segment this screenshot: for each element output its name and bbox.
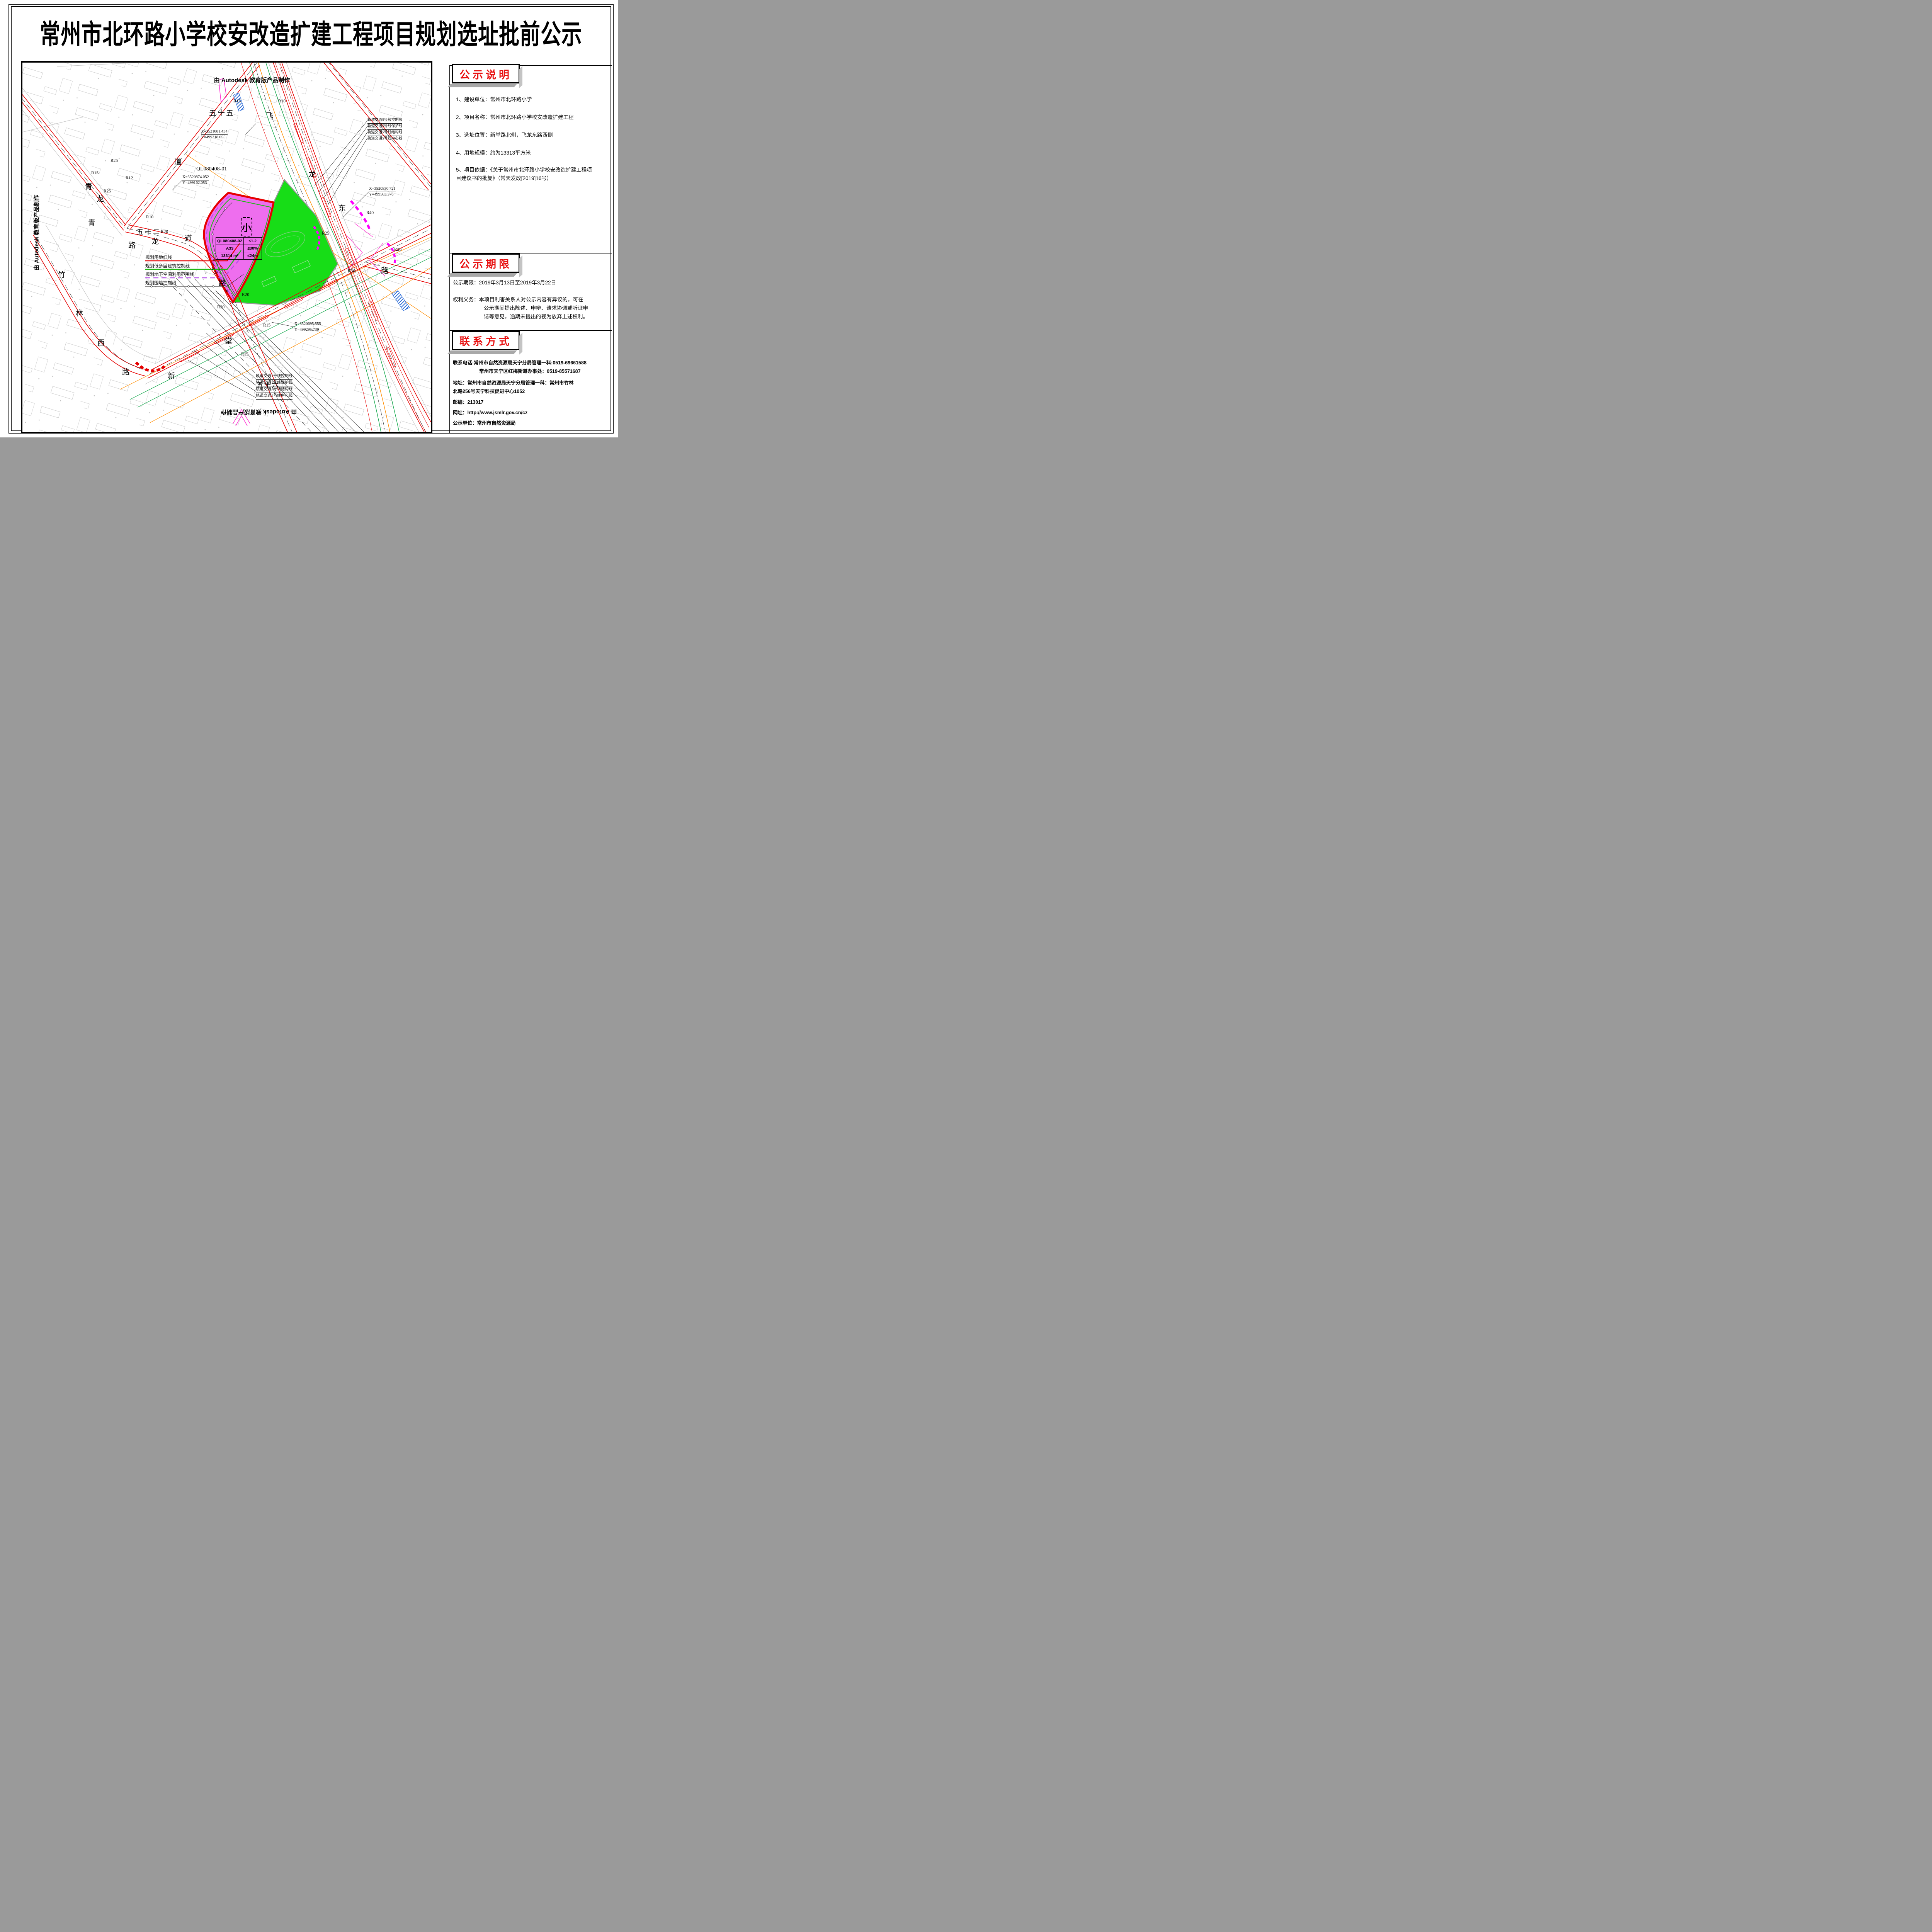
- contact-website: 网址：http://www.jsmlr.gov.cn/cz: [453, 408, 527, 416]
- notice-item: 目建议书的批复》（常天发改[2019]16号）: [456, 174, 552, 182]
- road-label: 龙: [308, 168, 316, 179]
- road-label: 飞: [266, 110, 273, 120]
- radius-label: R20: [217, 305, 224, 310]
- road-label: 五十二: [137, 226, 161, 236]
- road-label: 道: [174, 156, 182, 167]
- road-label: 西: [97, 337, 105, 347]
- road-label: 道: [185, 233, 192, 243]
- radius-label: R15: [233, 99, 241, 104]
- plot-code-cell: QL080408-02: [216, 238, 244, 245]
- road-label: 林: [76, 308, 83, 318]
- legend-item-label: 规划地下空间利用范围线: [145, 271, 194, 277]
- coord-x: X=3521081.434: [201, 129, 228, 135]
- radius-label: R15: [91, 171, 99, 175]
- contact-phone-line2: 常州市天宁区红梅街道办事处：0519-85571687: [479, 367, 581, 374]
- contact-zipcode: 邮编：213017: [453, 398, 483, 405]
- road-label: 路: [122, 366, 129, 377]
- dim-label: 20: [214, 270, 218, 274]
- radius-label: R15: [263, 323, 270, 328]
- radius-label: R10: [278, 99, 286, 104]
- watermark-left: 由 Autodesk 教育版产品制作: [32, 195, 41, 271]
- coord-callout: X=3521081.434 Y=499318.055: [201, 129, 228, 140]
- road-label: 新: [168, 370, 175, 381]
- map-area: 由 Autodesk 教育版产品制作 由 Autodesk 教育版产品制作 由 …: [21, 61, 432, 434]
- coord-x: X=3520874.052: [182, 175, 209, 180]
- rail1-label: 轨道交通1号线中心线: [256, 393, 293, 400]
- radius-label: R50: [348, 269, 355, 274]
- school-symbol: 小: [241, 217, 252, 236]
- coord-x: X=3520695.555: [294, 321, 321, 327]
- page-title: 常州市北环路小学校安改造扩建工程项目规划选址批前公示: [15, 13, 607, 52]
- rail5-label: 轨道交通5号线中心线: [367, 136, 402, 142]
- notice-item: 2、项目名称：常州市北环路小学校安改造扩建工程: [456, 113, 574, 121]
- rights-line: 权利义务：本项目利害关系人对公示内容有异议的，可在: [453, 295, 583, 303]
- plot-area-cell: 13314 m²: [216, 252, 244, 260]
- radius-label: R20: [242, 293, 249, 297]
- road-label: 五十五: [209, 107, 235, 118]
- dim-label: 30: [224, 289, 228, 293]
- contact-address-line2: 北路256号天宁科技促进中心1052: [453, 387, 525, 395]
- table-row: 13314 m² ≤24m: [216, 252, 262, 260]
- section-header-period: 公示期限: [452, 253, 520, 273]
- dim-label: 14: [211, 267, 215, 270]
- contact-phone-line: 联系电话:常州市自然资源局天宁分局管理一科:0519-69661588: [453, 359, 587, 366]
- road-label: 龙: [97, 193, 104, 204]
- rail1-label: 轨道交通1号线控制线: [256, 373, 293, 380]
- dim-label: 3: [205, 270, 207, 274]
- road-label: 竹: [58, 269, 65, 279]
- coord-callout: X=3520830.721 Y=499503.376: [369, 186, 396, 197]
- road-label: 路: [128, 240, 136, 250]
- road-label: 东: [338, 202, 346, 213]
- radius-label: R10: [146, 215, 153, 219]
- parcel-label: QL080408-01: [196, 166, 227, 172]
- plot-info-table: QL080408-02 ≤1.2 A33 ≤30% 13314 m² ≤24m: [216, 237, 262, 260]
- rail5-label: 轨道交通5号线控制线: [367, 117, 402, 124]
- rail5-label-block: 轨道交通5号线控制线 轨道交通5号线保护线 轨道交通5号线结构线 轨道交通5号线…: [367, 117, 402, 142]
- road-label: 堂: [225, 335, 232, 346]
- watermark-bottom: 由 Autodesk 教育版产品制作: [221, 408, 297, 417]
- legend-item-label: 规划低多层建筑控制线: [145, 263, 190, 269]
- rights-line: 请等意见，逾期未提出的视为放弃上述权利。: [484, 312, 588, 320]
- radius-label: R25: [322, 231, 329, 236]
- rail5-label: 轨道交通5号线保护线: [367, 124, 402, 130]
- contact-address-line: 地址：常州市自然资源局天宁分局管理一科：常州市竹林: [453, 379, 574, 386]
- table-row: QL080408-02 ≤1.2: [216, 238, 262, 245]
- radius-label: R15: [241, 352, 248, 357]
- dim-label: 3: [219, 267, 221, 270]
- dim-label: 5: [216, 262, 218, 266]
- period-text: 公示期限：2019年3月13日至2019年3月22日: [453, 278, 556, 286]
- legend-item-label: 规划用地红线: [145, 254, 172, 260]
- notice-item: 3、选址位置：新堂路北侧，飞龙东路西侧: [456, 131, 553, 138]
- coord-x: X=3520830.721: [369, 186, 396, 192]
- coord-y: Y=499295.739: [294, 327, 321, 332]
- coord-callout: X=3520695.555 Y=499295.739: [294, 321, 321, 332]
- coord-y: Y=499318.055: [201, 135, 228, 140]
- radius-label: R25: [111, 158, 118, 163]
- notice-item: 4、用地规模：约为13313平方米: [456, 148, 531, 156]
- road-label: 青: [85, 181, 92, 191]
- map-labels: 由 Autodesk 教育版产品制作 由 Autodesk 教育版产品制作 由 …: [22, 63, 431, 432]
- road-label: 路: [219, 277, 226, 288]
- notice-item: 1、建设单位：常州市北环路小学: [456, 95, 532, 103]
- radius-label: R20: [161, 230, 168, 234]
- notice-item: 5、项目依据：《关于常州市北环路小学校安改造扩建工程项: [456, 165, 592, 173]
- sidebar-left-rule: [449, 65, 450, 434]
- notice-sheet: 常州市北环路小学校安改造扩建工程项目规划选址批前公示: [0, 0, 618, 437]
- radius-label: R12: [126, 176, 133, 180]
- rights-line: 公示期间提出陈述、申辩、请求协调或听证申: [484, 304, 588, 311]
- radius-label: R20: [394, 247, 401, 252]
- road-label: 五十六: [257, 379, 280, 389]
- watermark-top: 由 Autodesk 教育版产品制作: [214, 76, 290, 84]
- dim-label: 8: [213, 258, 215, 262]
- plot-height-cell: ≤24m: [243, 252, 262, 260]
- plot-use-cell: A33: [216, 245, 244, 252]
- section-header-notice: 公示说明: [452, 64, 520, 83]
- radius-label: R25: [104, 189, 111, 194]
- coord-callout: X=3520874.052 Y=499162.053: [182, 175, 209, 185]
- road-label: 龙: [151, 236, 159, 246]
- plot-density-cell: ≤30%: [243, 245, 262, 252]
- radius-label: R40: [366, 211, 374, 215]
- road-label: 路: [381, 265, 388, 276]
- coord-y: Y=499503.376: [369, 192, 396, 197]
- publisher-line: 公示单位：常州市自然资源局: [453, 419, 516, 426]
- legend-item-label: 规划围墙控制线: [145, 280, 177, 286]
- coord-y: Y=499162.053: [182, 180, 209, 185]
- section-header-contact: 联系方式: [452, 331, 520, 350]
- road-label: 青: [88, 217, 95, 228]
- table-row: A33 ≤30%: [216, 245, 262, 252]
- rail5-label: 轨道交通5号线结构线: [367, 130, 402, 136]
- plot-far-cell: ≤1.2: [243, 238, 262, 245]
